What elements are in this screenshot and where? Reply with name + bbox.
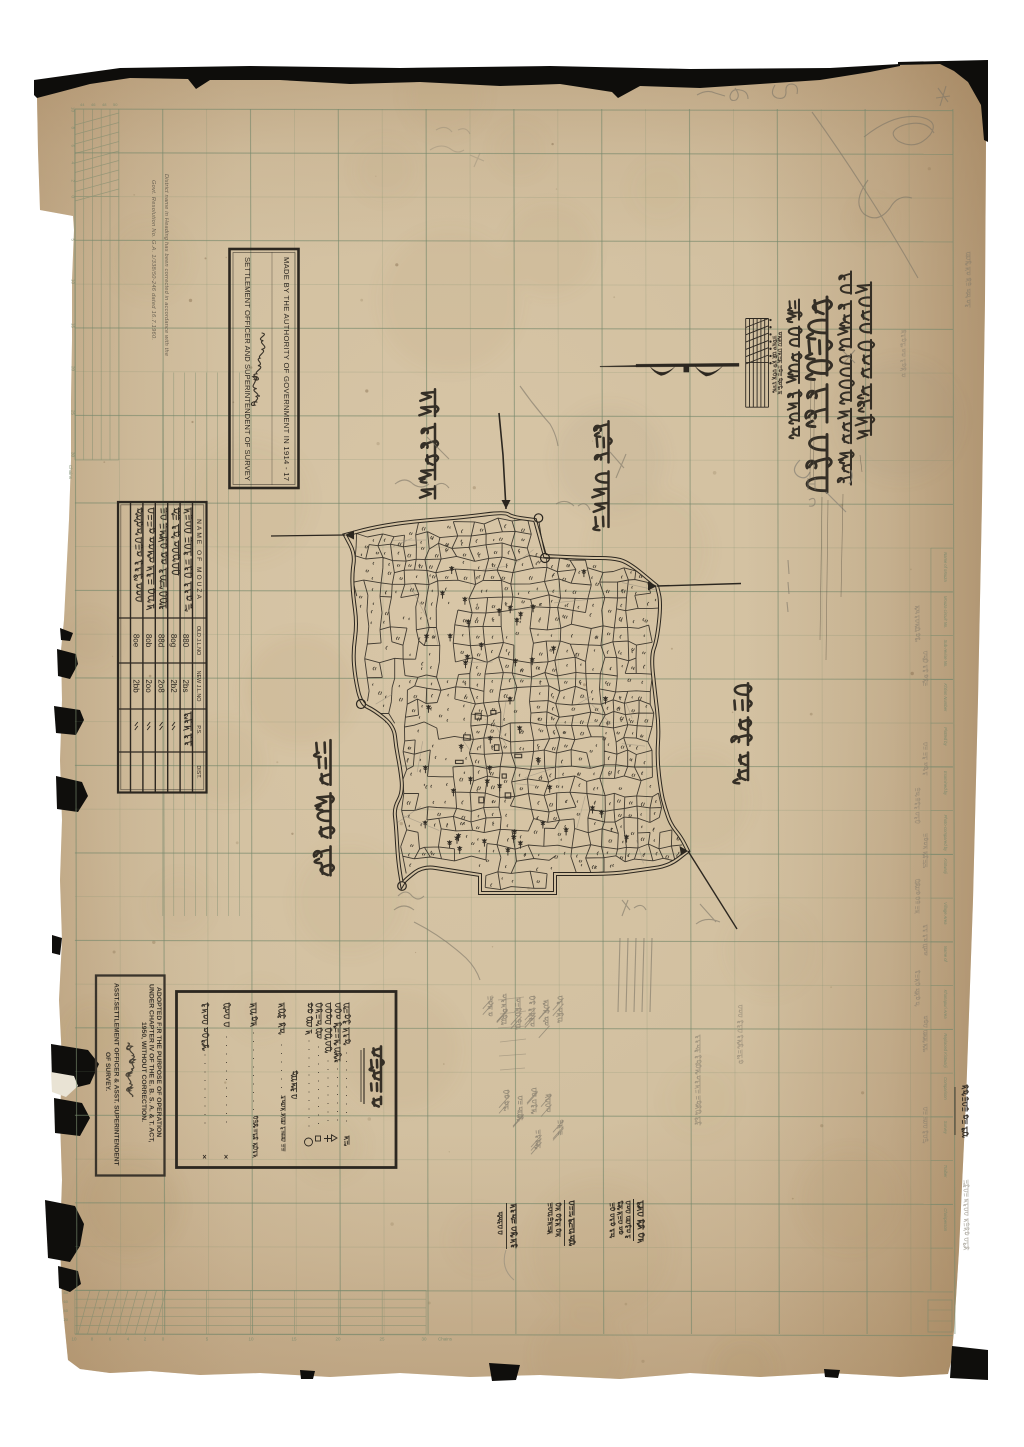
svg-text:20: 20 [64,1317,69,1322]
svg-text:46: 46 [91,102,96,107]
svg-text:OF SURVEY.: OF SURVEY. [104,1052,111,1091]
svg-text:40: 40 [64,1308,69,1313]
svg-text:2b2: 2b2 [169,679,178,693]
svg-text:DIST.: DIST. [195,765,201,778]
svg-text:30: 30 [71,452,76,458]
svg-text:2bs: 2bs [181,680,190,693]
svg-text:Chains: Chains [68,465,73,480]
svg-text:10: 10 [71,107,76,113]
svg-text:Survey: Survey [943,1121,948,1135]
svg-text:8oe: 8oe [132,634,141,648]
svg-text:2o8: 2o8 [156,679,165,693]
svg-text:ADOPTED F:R THE PURPOSE OF OPE: ADOPTED F:R THE PURPOSE OF OPERATION [155,987,162,1137]
svg-text:Khanapuri Area: Khanapuri Area [943,990,948,1020]
svg-text:880: 880 [181,634,190,648]
svg-text:2bb: 2bb [132,679,141,693]
svg-text:ASST.SETTLEMENT OFFICER & ASST: ASST.SETTLEMENT OFFICER & ASST. SUPERINT… [113,983,120,1166]
svg-text:SETTLEMENT OFFICER AND SUPERI: SETTLEMENT OFFICER AND SUPERINTENDENT OF… [243,257,252,481]
svg-text:Kistwarji: Kistwarji [943,858,948,875]
svg-text:Khtian Number: Khtian Number [943,683,948,712]
svg-text:Photo-compared by: Photo-compared by [943,815,948,852]
svg-text:60: 60 [64,1299,69,1304]
svg-text:District name in Heading has b: District name in Heading has been correc… [163,174,169,356]
svg-text:25: 25 [71,410,76,416]
svg-text:UNDER CHAPTER IV OF THE E. B.: UNDER CHAPTER IV OF THE E. B. S. A. & T.… [148,984,155,1143]
svg-text:Plotted by: Plotted by [943,727,948,747]
svg-text:8ob: 8ob [144,634,153,648]
svg-text:Chains: Chains [438,1337,453,1342]
svg-text:10: 10 [71,279,76,285]
svg-text:80: 80 [64,1290,69,1295]
svg-text:NEW J.L.NO: NEW J.L.NO [195,671,201,702]
svg-text:NAME OF MOUZA: NAME OF MOUZA [195,519,202,601]
svg-text:20: 20 [71,366,76,372]
svg-text:15: 15 [291,1337,297,1342]
svg-text:Replaced Kistwarji: Replaced Kistwarji [943,1033,948,1069]
svg-text:30: 30 [421,1337,427,1342]
svg-text:Govt. Resolution No. G.A. 1/33: Govt. Resolution No. G.A. 1/338/50-246 d… [150,180,156,340]
svg-text:Mouza circuit No.: Mouza circuit No. [943,596,948,628]
svg-text:44: 44 [80,102,85,107]
svg-text:Chairperson: Chairperson [943,1208,948,1231]
svg-text:Examined by: Examined by [943,771,948,796]
svg-text:Name of Mouza: Name of Mouza [943,552,948,582]
svg-text:20: 20 [335,1337,341,1342]
svg-text:Village Area: Village Area [943,902,948,925]
svg-text:P.S.: P.S. [195,725,201,734]
svg-text:OLD J.L.NO: OLD J.L.NO [195,626,201,655]
svg-text:Comparison: Comparison [943,1077,948,1100]
svg-text:48: 48 [102,102,107,107]
svg-text:Traiber: Traiber [943,1165,948,1179]
svg-text:15: 15 [71,323,76,329]
svg-text:25: 25 [379,1337,385,1342]
svg-text:Sub-revise No.: Sub-revise No. [943,640,948,668]
svg-text:2oo: 2oo [144,679,153,693]
svg-text:8og: 8og [169,634,178,647]
svg-text:1950, WITHOUT CORRECTION.: 1950, WITHOUT CORRECTION. [140,1022,147,1122]
svg-text:88d: 88d [156,634,165,647]
svg-text:10: 10 [71,1337,77,1342]
svg-text:Name of: Name of [943,946,948,963]
svg-text:MADE BY THE AUTHORITY OF GOVER: MADE BY THE AUTHORITY OF GOVERNMENT IN 1… [282,257,291,481]
svg-text:50: 50 [113,102,118,107]
svg-text:10: 10 [248,1337,254,1342]
